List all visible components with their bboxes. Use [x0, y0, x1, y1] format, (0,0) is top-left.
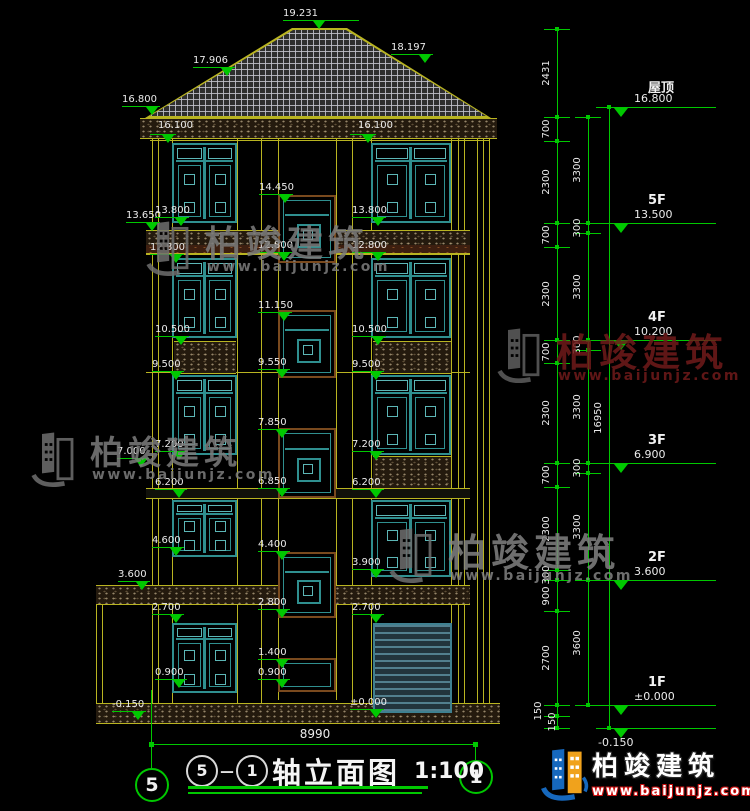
elevation-mark: 2.700: [152, 602, 181, 613]
elevation-value: 6.200: [155, 477, 184, 488]
dim-tick-dot: [586, 703, 590, 707]
window-part: [184, 289, 195, 300]
elevation-value: 9.500: [152, 359, 181, 370]
bottom-dim-line: [151, 744, 476, 745]
elevation-mark: 10.500: [352, 324, 387, 335]
window-part: [215, 650, 226, 661]
window-part: [409, 504, 412, 573]
window-part: [409, 262, 412, 334]
texture-band: [174, 341, 236, 374]
window-part: [387, 406, 398, 417]
wall-line: [483, 137, 484, 703]
window-part: [285, 329, 329, 331]
dim-chain-line: [588, 117, 589, 705]
elevation-value: 2.700: [352, 602, 381, 613]
dim-tick-dot: [555, 115, 559, 119]
dim-value: 2300: [541, 281, 552, 306]
window-part: [387, 557, 398, 568]
window-part: [376, 505, 408, 516]
company-logo-text: 柏竣建筑: [592, 746, 720, 783]
elevation-value: 0.900: [258, 667, 287, 678]
wall-line: [458, 137, 459, 703]
elevation-value: 12.800: [258, 240, 293, 251]
window-part: [176, 275, 233, 277]
floor-elevation: 10.200: [634, 325, 673, 338]
floor-elevation: 3.600: [634, 565, 666, 578]
window-part: [215, 317, 226, 328]
floor-elevation: 6.900: [634, 448, 666, 461]
dim-tick-dot: [586, 115, 590, 119]
elevation-value: 7.200: [352, 439, 381, 450]
wall-line: [96, 585, 97, 722]
elevation-value: 19.231: [283, 8, 318, 19]
window-part: [425, 530, 436, 541]
floor-line: [150, 140, 490, 141]
dim-tick-dot: [586, 461, 590, 465]
window-part: [285, 571, 329, 573]
window-part: [208, 148, 233, 159]
elevation-value: 6.200: [352, 477, 381, 488]
window-part: [376, 380, 408, 391]
elevation-value: 17.906: [193, 55, 228, 66]
elevation-mark: 16.800: [122, 94, 157, 105]
elevation-value: 16.100: [158, 120, 193, 131]
elevation-mark: 6.200: [352, 477, 381, 488]
wall-line: [237, 137, 238, 703]
dim-tick-dot: [607, 105, 611, 109]
elevation-mark: 6.200: [155, 477, 184, 488]
window-part: [425, 434, 436, 445]
elevation-mark: 19.231: [283, 8, 318, 19]
company-logo-url: www.baijunjz.com: [592, 784, 750, 799]
dim-tick-dot: [555, 361, 559, 365]
elevation-value: 16.100: [358, 120, 393, 131]
dim-value: 2300: [541, 169, 552, 194]
window-part: [376, 263, 408, 274]
floor-label: 4F: [648, 310, 666, 325]
window-part: [208, 380, 233, 391]
window-part: [215, 674, 226, 685]
window-part: [184, 406, 195, 417]
window-part: [425, 317, 436, 328]
floor-label: 2F: [648, 550, 666, 565]
watermark-url: www.baijunjz.com: [558, 368, 741, 384]
elevation-value: 9.550: [258, 357, 287, 368]
title-dash: －: [219, 759, 235, 783]
elevation-value: 18.197: [391, 42, 426, 53]
elevation-value: 3.900: [352, 557, 381, 568]
dim-tick-dot: [555, 27, 559, 31]
wall-line: [464, 137, 465, 703]
dim-value: 700: [541, 225, 552, 244]
elevation-mark: 4.400: [258, 539, 287, 550]
elevation-mark: 6.850: [258, 476, 287, 487]
window-part: [409, 379, 412, 451]
window-part: [176, 638, 233, 640]
dim-tick-dot: [555, 461, 559, 465]
elevation-mark: 12.800: [352, 240, 387, 251]
window-part: [425, 289, 436, 300]
title-scale: 1:100: [414, 759, 484, 784]
dim-value: 2431: [541, 60, 552, 85]
dim-value: 900: [541, 586, 552, 605]
company-logo-icon: [540, 742, 592, 808]
elevation-mark: 12.800: [150, 242, 185, 253]
dim-value: 150: [547, 712, 558, 731]
window-part: [414, 505, 446, 516]
elevation-mark: 12.800: [258, 240, 293, 251]
elevation-value: 2.800: [258, 597, 287, 608]
elevation-mark: 11.150: [258, 300, 293, 311]
window-part: [177, 505, 202, 512]
dim-tick-dot: [555, 139, 559, 143]
dim-tick-dot: [555, 578, 559, 582]
floor-level-triangle: [614, 108, 628, 117]
elevation-mark: 10.500: [155, 324, 190, 335]
dim-value: 3300: [572, 274, 583, 299]
window-part: [387, 434, 398, 445]
window-part: [208, 263, 233, 274]
window-part: [425, 406, 436, 417]
window-part: [414, 148, 446, 159]
elevation-value: 13.800: [352, 205, 387, 216]
window-part: [409, 147, 412, 219]
elevation-mark: 16.100: [158, 120, 193, 131]
texture-band: [140, 118, 497, 139]
title-underline-2: [188, 792, 422, 794]
floor-level-triangle: [614, 706, 628, 715]
window-part: [177, 148, 202, 159]
elevation-mark: 13.800: [352, 205, 387, 216]
floor-level-triangle: [614, 341, 628, 350]
dim-tick-dot: [586, 471, 590, 475]
elevation-mark: 0.900: [155, 667, 184, 678]
elevation-mark: 0.900: [258, 667, 287, 678]
window-part: [425, 202, 436, 213]
window-part: [203, 504, 206, 553]
elevation-mark: 2.700: [352, 602, 381, 613]
window-part: [176, 392, 233, 394]
floor-level-triangle: [614, 464, 628, 473]
elevation-value: 7.850: [258, 417, 287, 428]
floor-elevation: 13.500: [634, 208, 673, 221]
dim-value: 700: [541, 342, 552, 361]
wall-line: [102, 585, 103, 722]
floor-level-triangle: [614, 581, 628, 590]
dim-tick-dot: [555, 703, 559, 707]
dim-value: 16950: [593, 402, 604, 434]
window-part: [414, 263, 446, 274]
elevation-value: 13.800: [155, 205, 190, 216]
window-part: [203, 627, 206, 689]
window-part: [387, 202, 398, 213]
window-part: [203, 379, 206, 451]
elevation-mark: 9.550: [258, 357, 287, 368]
elevation-mark: 14.450: [259, 182, 294, 193]
window-part: [203, 147, 206, 219]
window-part: [285, 214, 329, 216]
window-part: [425, 174, 436, 185]
window-part: [215, 174, 226, 185]
window-part: [208, 628, 233, 637]
wall-line: [336, 137, 337, 700]
window-part: [387, 174, 398, 185]
texture-band: [373, 341, 451, 374]
dim-value: 3300: [572, 157, 583, 182]
dim-value: 700: [541, 119, 552, 138]
window-part: [184, 650, 195, 661]
window-large: [371, 375, 451, 455]
title-axis-circle-right: 1: [236, 755, 268, 787]
elevation-mark: 13.800: [155, 205, 190, 216]
elevation-value: 14.450: [259, 182, 294, 193]
dim-tick-dot: [586, 348, 590, 352]
elevation-value: 4.600: [152, 535, 181, 546]
elevation-mark: 16.100: [358, 120, 393, 131]
company-logo: 柏竣建筑 www.baijunjz.com: [540, 740, 750, 810]
elevation-value: 7.000: [117, 446, 146, 457]
dim-value: 3600: [572, 630, 583, 655]
dim-value: 3300: [572, 394, 583, 419]
window-part: [375, 160, 447, 162]
elevation-mark: 9.500: [152, 359, 181, 370]
dim-chain-line: [609, 107, 610, 728]
elevation-mark: 4.600: [152, 535, 181, 546]
dim-chain-line: [557, 29, 558, 728]
elevation-value: 10.500: [352, 324, 387, 335]
window-part: [414, 380, 446, 391]
dim-value: 300: [572, 218, 583, 237]
wall-line: [352, 137, 353, 703]
dim-tick-dot: [586, 578, 590, 582]
roof-tiles: [145, 28, 491, 118]
elevation-value: ±0.000: [350, 697, 387, 708]
elevation-mark: 9.500: [352, 359, 381, 370]
elevation-value: 0.900: [155, 667, 184, 678]
window-part: [215, 202, 226, 213]
window-part: [303, 230, 313, 240]
title-axis-circle-left: 5: [186, 755, 218, 787]
window-part: [215, 540, 226, 551]
watermark-text: 柏竣建筑: [448, 522, 620, 577]
elevation-value: 11.150: [258, 300, 293, 311]
dim-tick-dot: [586, 338, 590, 342]
elevation-mark: -0.150: [112, 699, 144, 710]
window-part: [203, 262, 206, 334]
bottom-dim-dot-left: [149, 742, 154, 747]
elevation-drawing-canvas: 8990 5 1 5 － 1 轴立面图 1:100 柏竣建筑: [0, 0, 750, 811]
elevation-value: 10.500: [155, 324, 190, 335]
elevation-value: 12.800: [150, 242, 185, 253]
window-part: [375, 517, 447, 519]
elevation-mark: 18.197: [391, 42, 426, 53]
window-part: [176, 513, 233, 515]
dim-value: 2300: [541, 400, 552, 425]
title-underline-1: [188, 786, 428, 789]
elevation-mark: 7.200: [352, 439, 381, 450]
wall-line: [477, 137, 478, 703]
window-part: [177, 628, 202, 637]
elevation-value: 12.800: [352, 240, 387, 251]
window-part: [176, 160, 233, 162]
elevation-mark: 3.600: [118, 569, 147, 580]
wall-line: [451, 137, 452, 703]
elevation-mark: 1.400: [258, 647, 287, 658]
dim-value: 2700: [541, 645, 552, 670]
elevation-value: 16.800: [122, 94, 157, 105]
window-large: [371, 500, 451, 577]
window-part: [177, 263, 202, 274]
window-part: [285, 448, 329, 450]
dim-tick-dot: [555, 485, 559, 489]
window-part: [184, 174, 195, 185]
dim-value: 700: [541, 465, 552, 484]
watermark-logo-icon: [28, 430, 86, 490]
window-part: [303, 586, 313, 596]
dim-value: 300: [572, 335, 583, 354]
window-part: [208, 505, 233, 512]
window-part: [215, 406, 226, 417]
window-part: [375, 392, 447, 394]
elevation-mark: 3.900: [352, 557, 381, 568]
window-part: [184, 434, 195, 445]
elevation-value: 4.400: [258, 539, 287, 550]
window-part: [215, 434, 226, 445]
dim-tick-dot: [555, 245, 559, 249]
dim-tick-dot: [586, 231, 590, 235]
dim-value: 300: [541, 565, 552, 584]
elevation-mark: 7.200: [155, 439, 184, 450]
window-part: [425, 557, 436, 568]
dim-tick-dot: [555, 338, 559, 342]
elevation-value: 3.600: [118, 569, 147, 580]
floor-level-triangle: [614, 224, 628, 233]
window-part: [375, 275, 447, 277]
elevation-mark: 17.906: [193, 55, 228, 66]
dim-tick-dot: [607, 726, 611, 730]
elevation-value: 2.700: [152, 602, 181, 613]
dim-value: 2300: [541, 516, 552, 541]
window-part: [184, 521, 195, 532]
texture-band: [373, 456, 451, 489]
window-part: [283, 663, 331, 687]
dim-value: 3300: [572, 514, 583, 539]
window-part: [215, 289, 226, 300]
window-part: [387, 317, 398, 328]
window-part: [177, 380, 202, 391]
elevation-mark: 2.800: [258, 597, 287, 608]
dim-tick-dot: [586, 221, 590, 225]
bottom-dim-text: 8990: [290, 727, 340, 741]
elevation-value: 7.200: [155, 439, 184, 450]
elevation-value: 9.500: [352, 359, 381, 370]
window-part: [303, 345, 313, 355]
elevation-value: 1.400: [258, 647, 287, 658]
floor-label: 5F: [648, 193, 666, 208]
dim-value: 300: [572, 458, 583, 477]
floor-elevation: 16.800: [634, 92, 673, 105]
window-part: [184, 540, 195, 551]
floor-label: 3F: [648, 433, 666, 448]
axis-bubble-left: 5: [135, 768, 169, 802]
wall-line: [489, 137, 490, 703]
window-part: [215, 521, 226, 532]
dim-tick-dot: [555, 568, 559, 572]
window-part: [387, 289, 398, 300]
bottom-dim-dot-right: [473, 742, 478, 747]
window-part: [303, 464, 313, 474]
elevation-value: 6.850: [258, 476, 287, 487]
dim-tick-dot: [555, 221, 559, 225]
dim-value: 150: [533, 701, 544, 720]
window-part: [376, 148, 408, 159]
elevation-mark: ±0.000: [350, 697, 387, 708]
floor-label: 1F: [648, 675, 666, 690]
window-part: [387, 530, 398, 541]
elevation-mark: 7.000: [117, 446, 146, 457]
floor-elevation: ±0.000: [634, 690, 675, 703]
elevation-value: -0.150: [112, 699, 144, 710]
axis-line-left: [151, 690, 152, 768]
dim-tick-dot: [555, 609, 559, 613]
elevation-mark: 7.850: [258, 417, 287, 428]
